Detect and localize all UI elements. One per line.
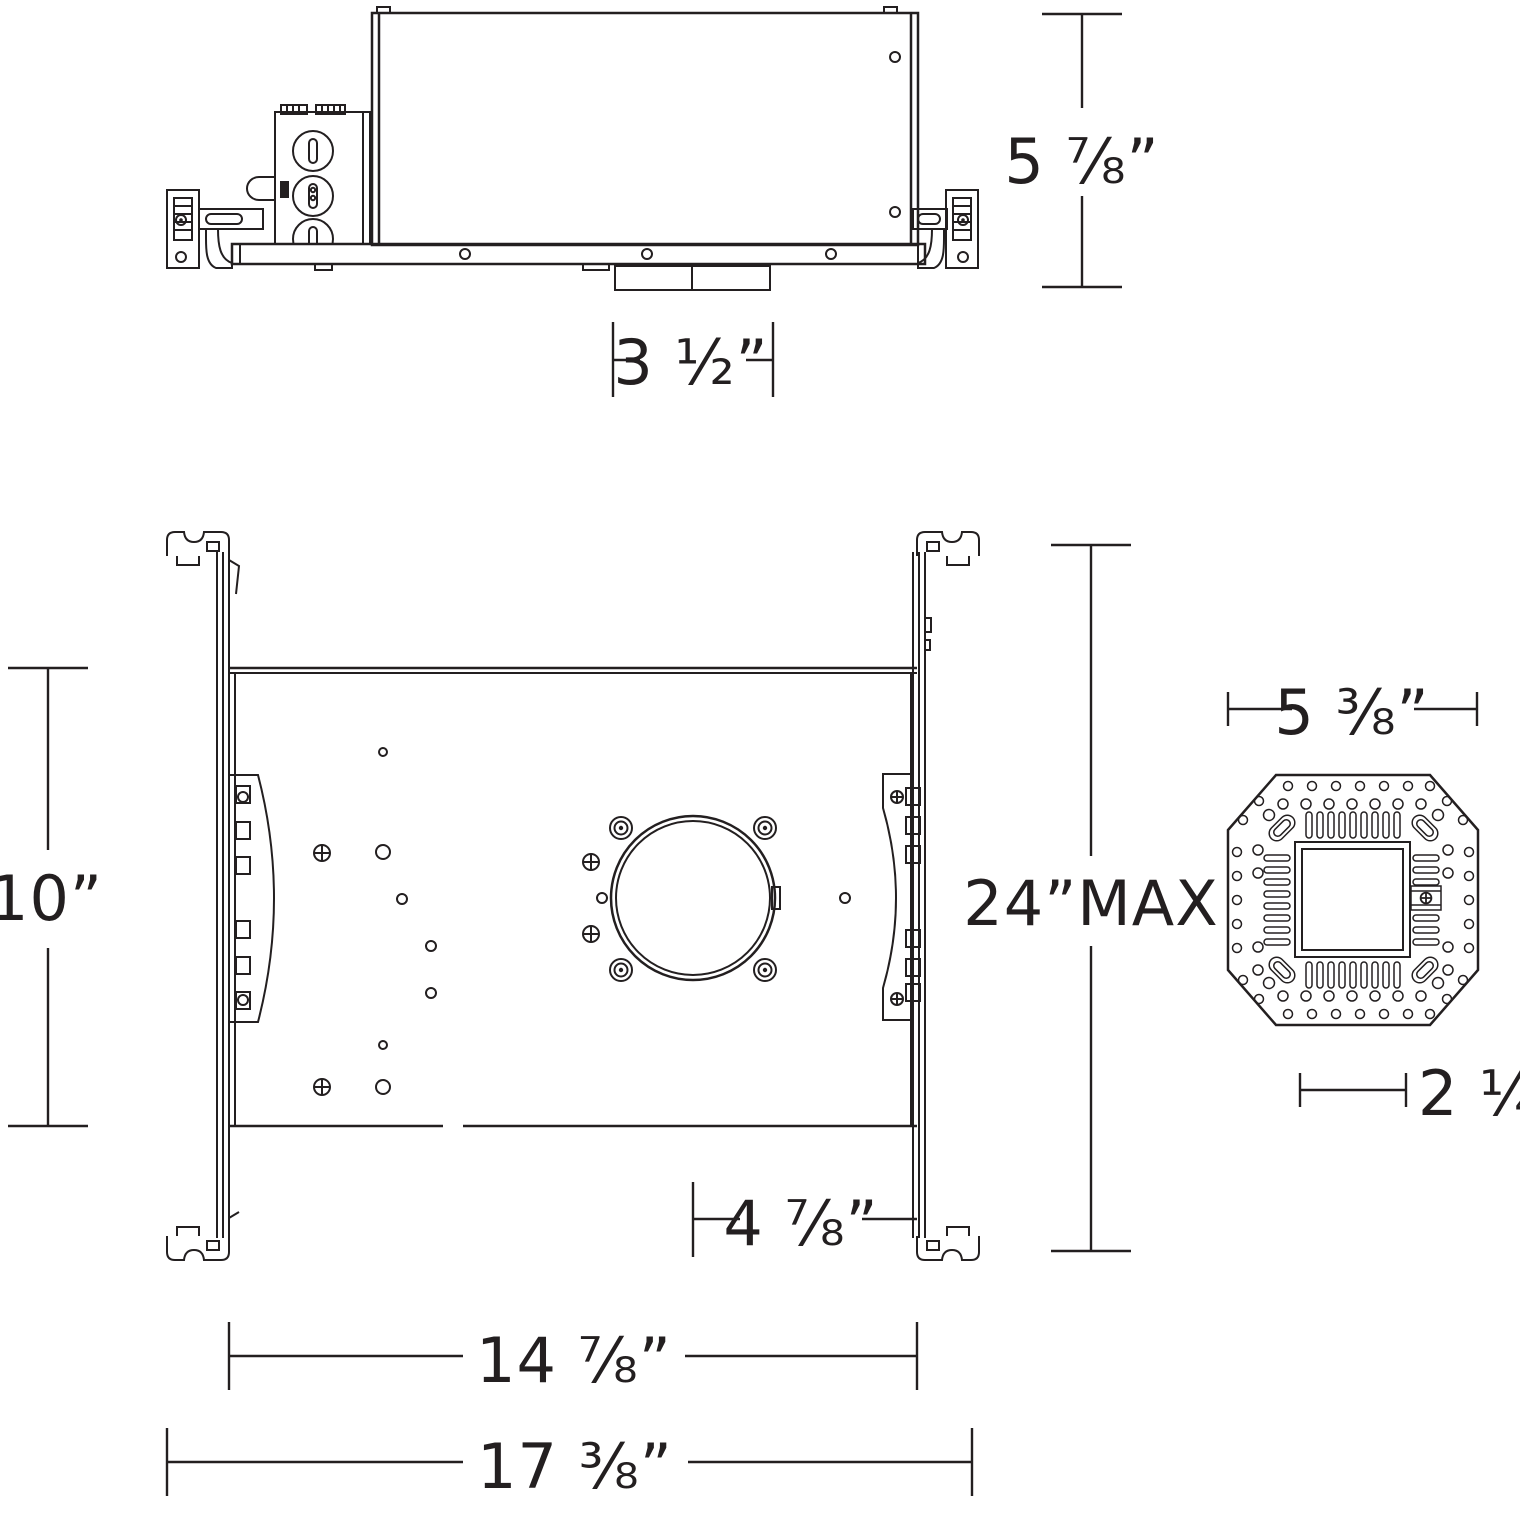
plan-view: 10” 24”MAX 4 ⅞” <box>0 532 1219 1503</box>
aperture-ring <box>583 816 850 981</box>
dimension-housing-height: 5 ⅞” <box>1004 14 1159 287</box>
dimension-module-aperture: 2 ¼” <box>1300 1057 1520 1130</box>
dimension-label-pan-width: 14 ⅞” <box>476 1324 672 1397</box>
aperture-collar <box>615 266 770 290</box>
dimension-module-width: 5 ⅜” <box>1228 676 1477 749</box>
ratchet-teeth-left <box>236 786 250 1009</box>
dimension-label-bracket-height: 10” <box>0 862 103 935</box>
mounting-pan <box>229 668 917 1126</box>
clamp-block <box>280 181 289 198</box>
module-vent-slots <box>1264 812 1439 988</box>
junction-box <box>247 105 370 259</box>
nail-plate-foot-top-right <box>917 532 979 565</box>
knockout-circles <box>293 131 333 259</box>
hanger-hook-left <box>206 229 232 268</box>
side-view: 5 ⅞” 3 ½” <box>167 7 1160 399</box>
wire-clamp-bump <box>247 177 275 200</box>
mounting-flange <box>232 244 925 270</box>
dimension-pan-width: 14 ⅞” <box>229 1322 917 1397</box>
hanger-bar-right <box>913 552 931 1238</box>
pan-holes <box>314 748 436 1095</box>
dimension-label-aperture-to-edge: 4 ⅞” <box>723 1187 878 1260</box>
drawing-sheet: 5 ⅞” 3 ½” <box>0 0 1520 1520</box>
nail-plate-foot-bottom-left <box>167 1227 229 1260</box>
nail-plate-foot-top-left <box>167 532 229 565</box>
dimension-overall-width: 17 ⅜” <box>167 1428 972 1503</box>
dimension-label-hanger-bar-max: 24”MAX <box>963 867 1218 940</box>
dimension-bracket-height: 10” <box>0 668 103 1126</box>
dimension-label-module-width: 5 ⅜” <box>1274 676 1429 749</box>
module-view: 5 ⅜” 2 ¼” <box>1228 676 1520 1130</box>
module-square-aperture <box>1295 842 1410 957</box>
nail-plate-foot-bottom-right <box>917 1227 979 1260</box>
dimension-collar-width: 3 ½” <box>613 322 773 399</box>
module-screw-pad <box>1411 886 1441 910</box>
friction-bracket-right <box>883 774 920 1020</box>
housing-dimension-drawing: 5 ⅞” 3 ½” <box>0 0 1520 1520</box>
dimension-hanger-bar-max: 24”MAX <box>963 545 1218 1251</box>
dimension-label-housing-height: 5 ⅞” <box>1004 125 1159 198</box>
dimension-label-module-aperture: 2 ¼” <box>1418 1057 1520 1130</box>
dimension-label-collar-width: 3 ½” <box>613 326 768 399</box>
module-perimeter-holes <box>1233 782 1474 1019</box>
housing-can <box>372 7 918 245</box>
dimension-label-overall-width: 17 ⅜” <box>477 1430 673 1503</box>
dimension-aperture-to-edge: 4 ⅞” <box>693 1182 917 1260</box>
